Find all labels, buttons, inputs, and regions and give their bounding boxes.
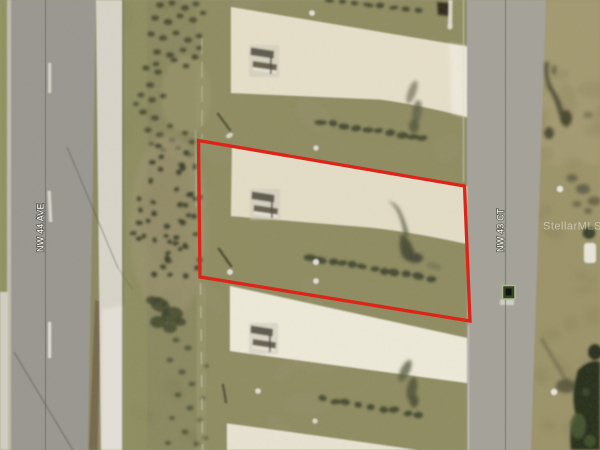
svg-text:StellarMLS: StellarMLS	[543, 221, 600, 233]
svg-text:NW 44 AVE: NW 44 AVE	[36, 203, 46, 252]
svg-text:NW 43 CT: NW 43 CT	[496, 208, 506, 252]
